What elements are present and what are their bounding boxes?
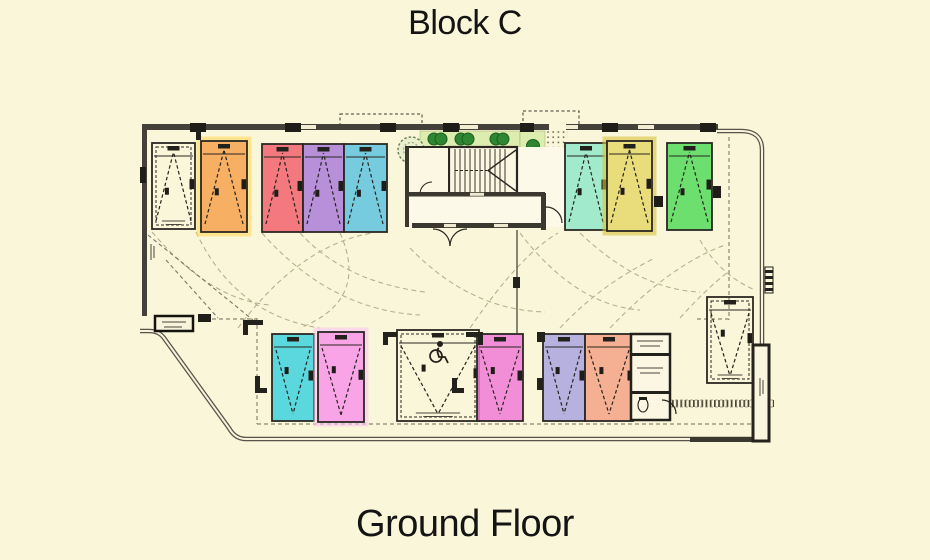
wall-note-micro xyxy=(151,244,154,260)
door-arc-left xyxy=(433,229,450,246)
parking-space-blue-p5 xyxy=(344,144,387,232)
parking-space-unassigned-p15 xyxy=(707,297,753,383)
door-arc-right xyxy=(450,229,467,246)
service-shaft xyxy=(753,345,769,441)
parking-space-yellow-p7 xyxy=(605,139,655,234)
floor-plan-drawing xyxy=(0,0,930,560)
aisle-straight-guides xyxy=(148,235,253,320)
parking-space-green-p8 xyxy=(667,143,712,230)
parking-space-orange-p2 xyxy=(199,139,250,235)
column-grid-line xyxy=(513,230,520,333)
staircase xyxy=(449,147,517,194)
roof-overhang-dashes xyxy=(340,111,579,126)
parking-space-mint-p6 xyxy=(565,143,607,230)
parking-space-pink-p10 xyxy=(316,330,367,425)
core-side-room xyxy=(406,147,449,194)
parking-space-unassigned-p1 xyxy=(152,143,195,229)
wheelchair-icon xyxy=(430,341,448,363)
floor-plan-page: Block C Ground Floor xyxy=(0,0,930,560)
aisle-turning-guides xyxy=(152,232,755,328)
parking-space-magenta-p12 xyxy=(477,334,523,421)
parking-space-cyan-p9 xyxy=(272,334,314,421)
utility-rooms xyxy=(631,334,676,420)
stair-core xyxy=(405,147,568,246)
parking-space-lavender-p13 xyxy=(543,334,585,421)
boundary-stripe-marker xyxy=(765,267,773,293)
parking-space-accessible-p11 xyxy=(397,330,479,421)
block-label-box xyxy=(155,314,211,331)
parking-space-purple-p4 xyxy=(303,144,344,232)
parking-space-salmon-p14 xyxy=(585,334,633,421)
parking-space-red-p3 xyxy=(262,144,303,232)
